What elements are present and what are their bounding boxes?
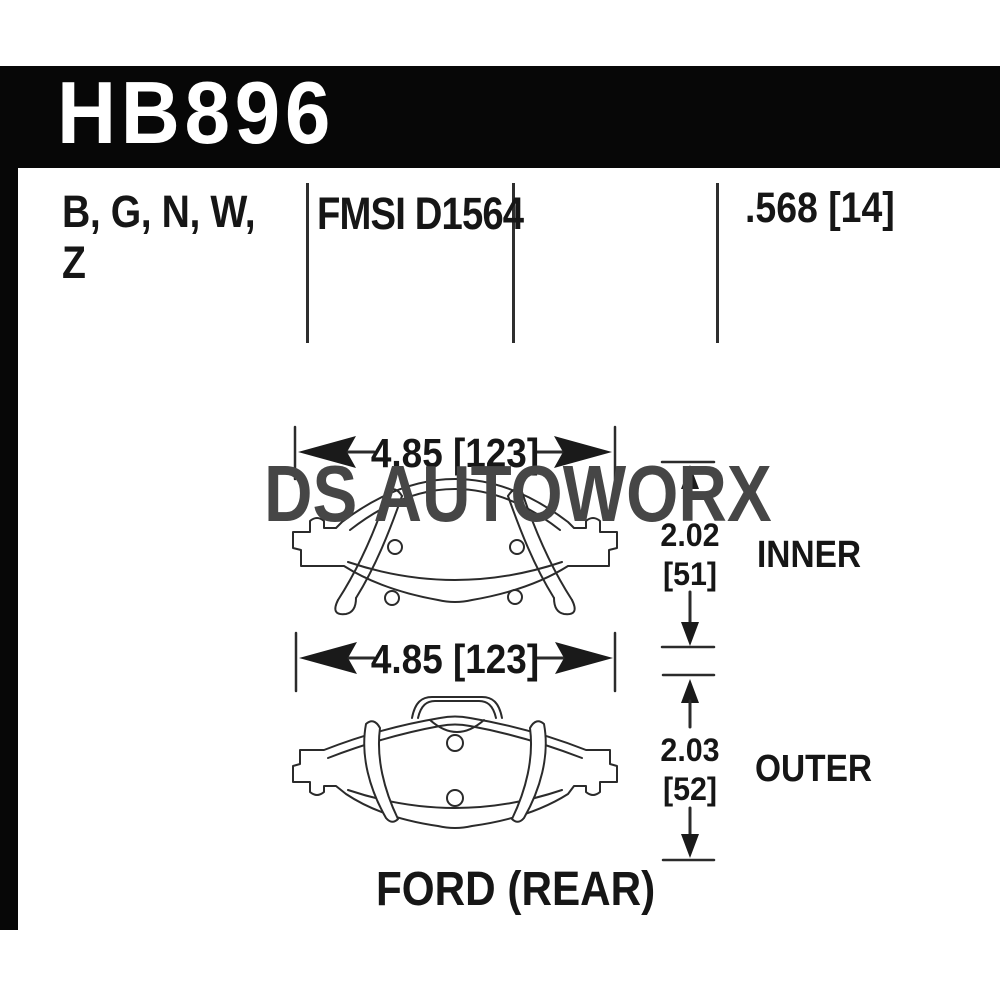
- rivet-hole: [508, 590, 522, 604]
- left-border-strip: [0, 168, 18, 930]
- width-dimension-bottom-value: 4.85 [123]: [365, 636, 545, 683]
- pad-thickness-value: .568 [14]: [745, 184, 895, 233]
- fmsi-number: FMSI D1564: [317, 188, 523, 240]
- inner-pad-label: INNER: [757, 534, 861, 577]
- header-bar: HB896: [0, 66, 1000, 168]
- compound-codes-line1: B, G, N, W,: [62, 186, 255, 237]
- outer-height-mm: [52]: [647, 770, 733, 809]
- brake-pad-spec-sheet: HB896 B, G, N, W, Z FMSI D1564 .568 [14]: [0, 0, 1000, 1000]
- outer-height-value: 2.03 [52]: [647, 731, 733, 809]
- outer-pad-label: OUTER: [755, 748, 872, 791]
- watermark-text: DS AUTOWORX: [264, 456, 772, 532]
- rivet-hole: [388, 540, 402, 554]
- outer-height-inches: 2.03: [647, 731, 733, 770]
- outer-pad-outline: [293, 717, 617, 829]
- outer-pad-drawing: [293, 697, 617, 828]
- part-number: HB896: [57, 62, 335, 164]
- column-divider-1: [306, 183, 309, 343]
- inner-height-mm: [51]: [647, 555, 733, 594]
- rivet-hole: [447, 735, 463, 751]
- rivet-hole: [447, 790, 463, 806]
- compound-codes-line2: Z: [62, 237, 255, 288]
- rivet-hole: [385, 591, 399, 605]
- arrowhead-down: [681, 622, 699, 646]
- arrowhead-up: [681, 679, 699, 703]
- application-caption: FORD (REAR): [376, 862, 640, 917]
- arrowhead-down: [681, 834, 699, 858]
- column-divider-3: [716, 183, 719, 343]
- rivet-hole: [510, 540, 524, 554]
- compound-codes: B, G, N, W, Z: [62, 186, 255, 288]
